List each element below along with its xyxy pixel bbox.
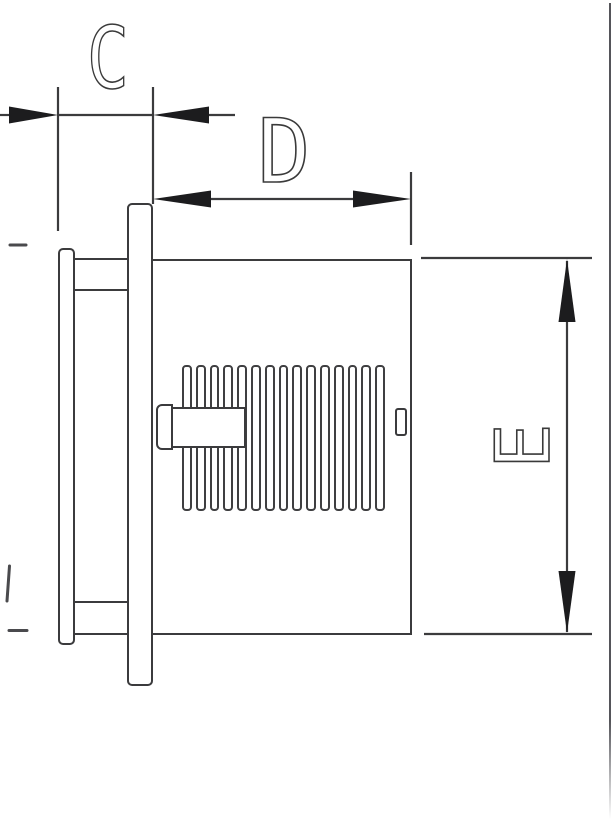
dim-e-label: E — [479, 423, 567, 468]
shaft-cap — [156, 404, 173, 450]
clamp-bottom-lower-line — [73, 633, 130, 635]
fin-slat — [348, 365, 358, 511]
dim-e-arrow-up — [559, 259, 576, 322]
dim-c-arrow-left — [9, 107, 58, 124]
fin-slat — [251, 365, 261, 511]
dim-c-label: C — [87, 8, 129, 109]
shaft-body — [171, 407, 246, 448]
bezel-plate — [127, 203, 153, 686]
fin-slat — [279, 365, 289, 511]
fin-slat — [375, 365, 385, 511]
panel-plate — [58, 248, 75, 645]
fin-slat — [361, 365, 371, 511]
dim-d-arrow-left — [153, 191, 211, 208]
left-slash-fragment — [7, 566, 10, 601]
fin-slat — [292, 365, 302, 511]
fin-slat — [306, 365, 316, 511]
technical-drawing-canvas: C D E — [0, 0, 615, 832]
dim-d-label: D — [258, 100, 311, 203]
clamp-top-lower-line — [73, 289, 130, 291]
clamp-bottom-upper-line — [73, 601, 130, 603]
clamp-top-upper-line — [73, 258, 130, 260]
fin-slat — [265, 365, 275, 511]
dim-e-arrow-down — [559, 571, 576, 633]
latch — [395, 408, 407, 436]
page-border-line — [609, 3, 611, 819]
fin-slat — [334, 365, 344, 511]
dim-c-arrow-right — [153, 107, 209, 124]
fin-slat — [320, 365, 330, 511]
dim-d-arrow-right — [353, 191, 411, 208]
